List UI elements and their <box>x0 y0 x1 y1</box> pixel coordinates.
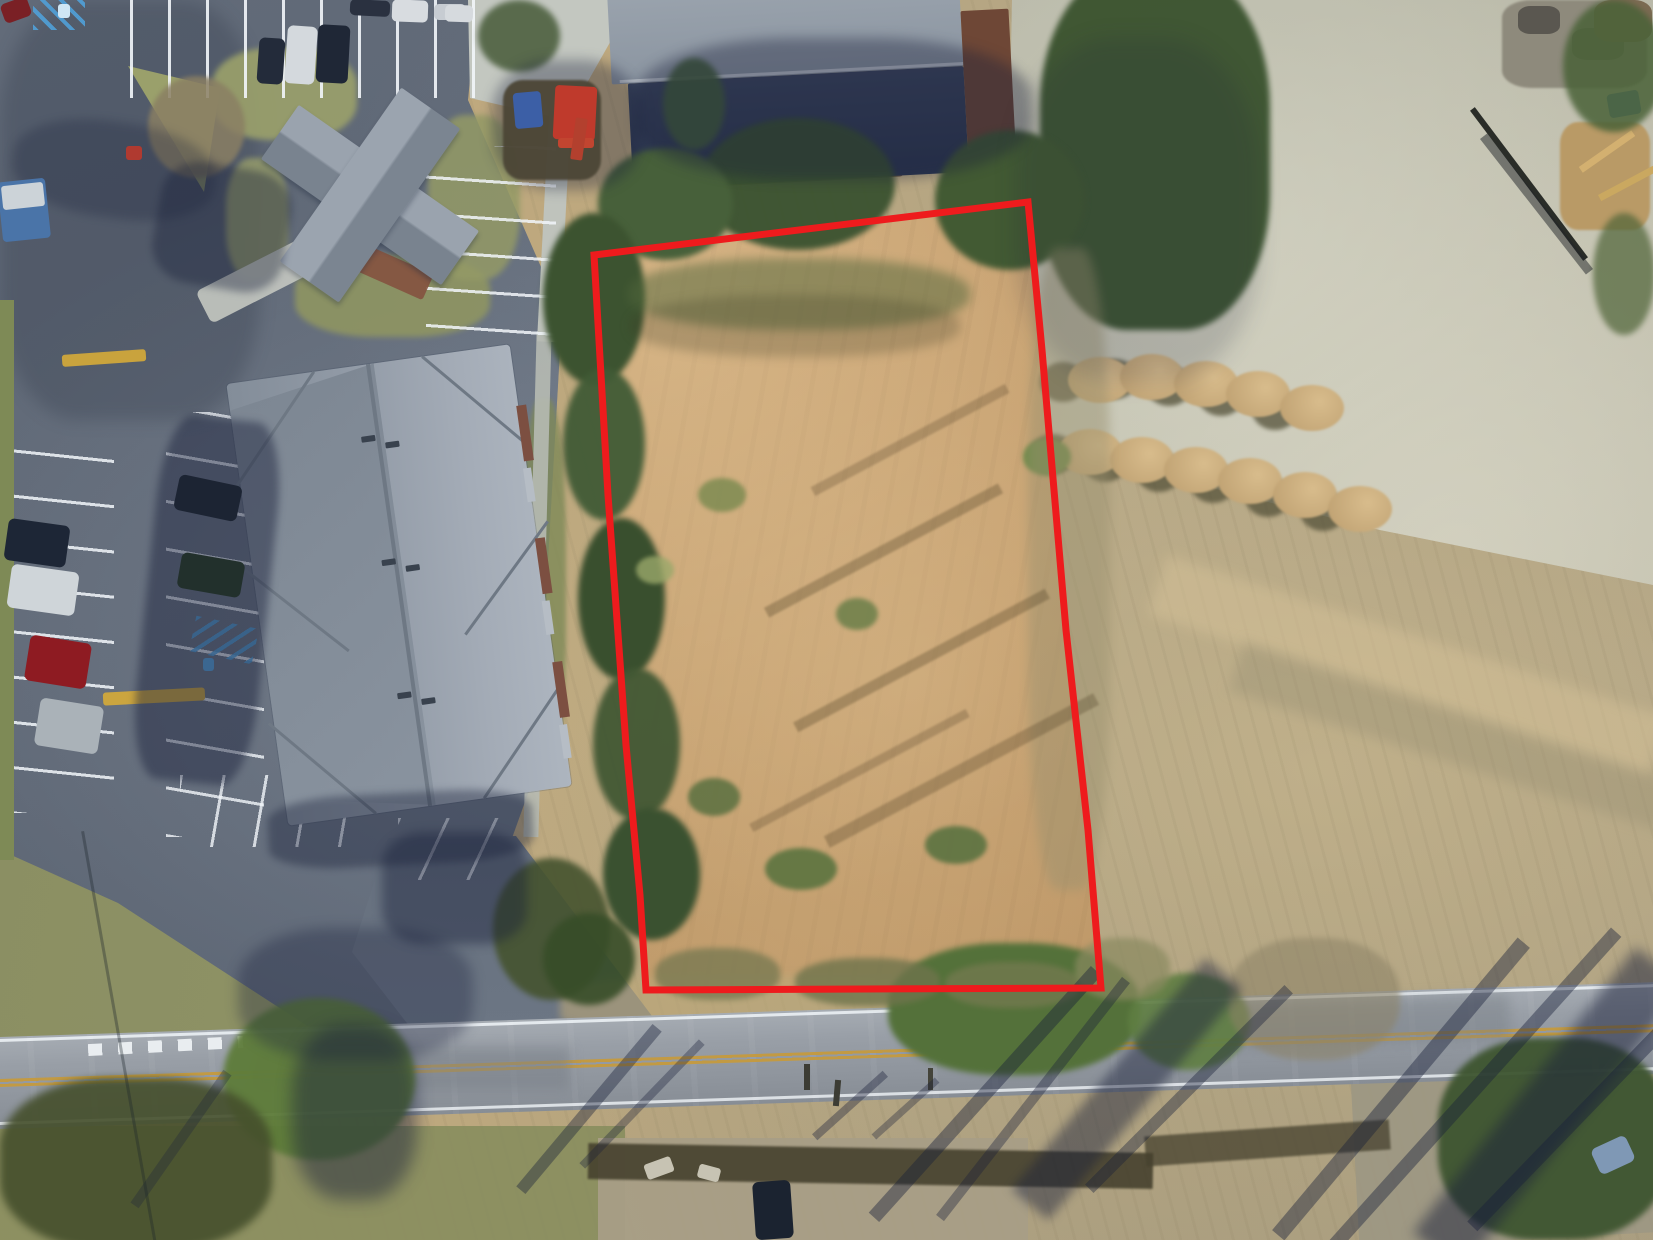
property-boundary <box>594 202 1101 990</box>
aerial-photo <box>0 0 1653 1240</box>
boundary-overlay <box>0 0 1653 1240</box>
